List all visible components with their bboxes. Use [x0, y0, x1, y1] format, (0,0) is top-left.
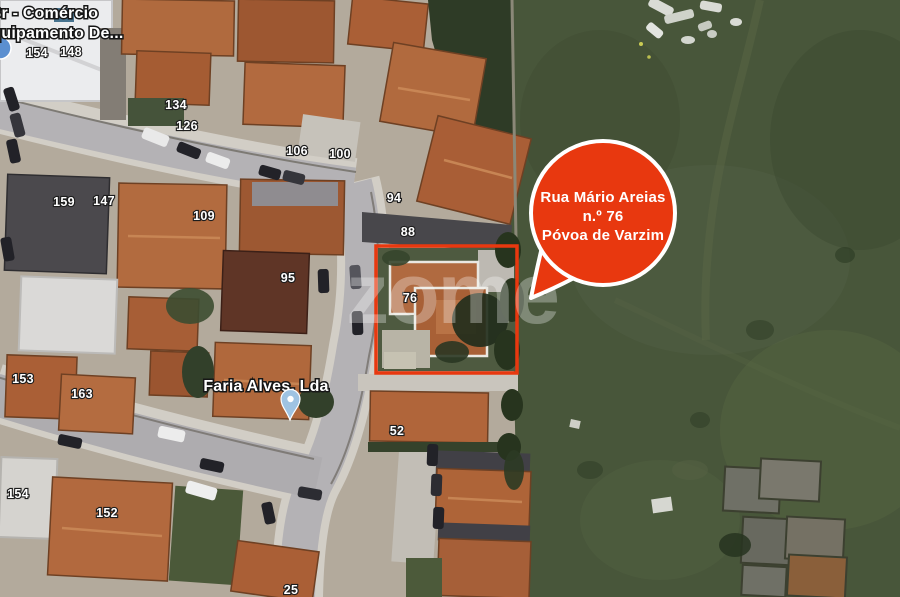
house-number-label: 95 — [281, 271, 296, 285]
house-number-label: 154 — [7, 487, 29, 501]
house-number-label: 147 — [93, 194, 115, 208]
poi-label-comercio-line1[interactable]: Br - Comércio — [0, 5, 98, 22]
house-number-label: 100 — [329, 147, 351, 161]
house-number-label: 134 — [165, 98, 187, 112]
house-number-label: 159 — [53, 195, 75, 209]
callout-line2: n.º 76 — [583, 208, 624, 225]
screenshot-root: 154 148 134 126 106 100 94 88 159 147 10… — [0, 0, 900, 597]
house-number-label: 153 — [12, 372, 34, 386]
house-number-label: 109 — [193, 209, 215, 223]
house-number-label: 148 — [60, 45, 82, 59]
callout-line3: Póvoa de Varzim — [542, 227, 664, 244]
house-number-label: 88 — [401, 225, 416, 239]
house-number-label: 25 — [284, 583, 299, 597]
zome-watermark: zome — [346, 246, 558, 342]
poi-label-comercio-line2[interactable]: Equipamento De... — [0, 25, 123, 42]
satellite-map[interactable]: 154 148 134 126 106 100 94 88 159 147 10… — [0, 0, 900, 597]
callout-line1: Rua Mário Areias — [540, 189, 665, 206]
house-number-label: 106 — [286, 144, 308, 158]
house-number-label: 163 — [71, 387, 93, 401]
house-number-label: 52 — [390, 424, 405, 438]
poi-label-faria[interactable]: Faria Alves, Lda — [203, 378, 328, 395]
house-number-label: 126 — [176, 119, 198, 133]
field-layer — [505, 0, 900, 597]
driveway-strip — [358, 374, 518, 391]
house-number-label: 154 — [26, 46, 48, 60]
house-number-label: 94 — [387, 191, 402, 205]
house-number-label: 152 — [96, 506, 118, 520]
